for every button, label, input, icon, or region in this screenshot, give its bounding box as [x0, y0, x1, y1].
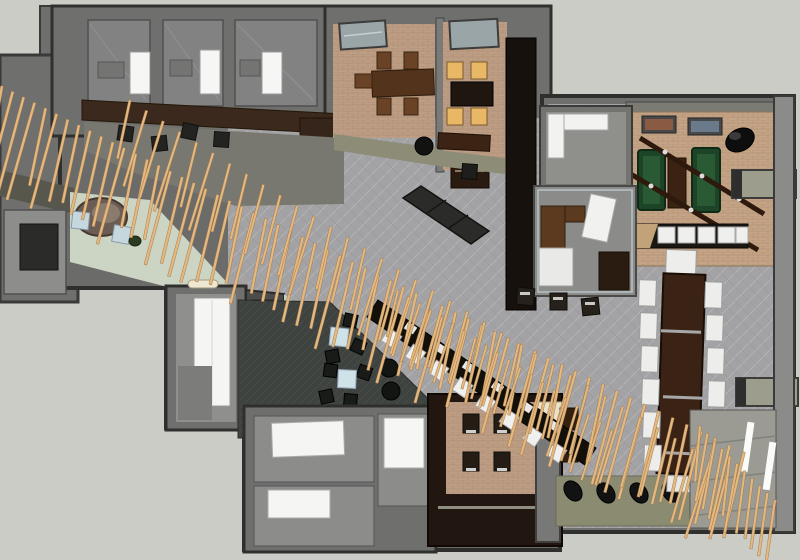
- floor-plan-rendering: [0, 0, 800, 560]
- conference-chair: [705, 282, 723, 309]
- conference-chair: [640, 313, 658, 340]
- small-dark-table: [461, 163, 477, 179]
- dining1-table: [372, 69, 435, 97]
- lounge-chair: [325, 349, 340, 364]
- lounge-pouf: [382, 382, 400, 400]
- workshop-room1-table: [271, 421, 344, 457]
- conference-chair: [707, 348, 725, 375]
- conference-chair: [639, 280, 657, 307]
- right-exterior-wall: [774, 96, 794, 532]
- room3-desk: [240, 60, 260, 76]
- beam-fitting: [649, 184, 654, 189]
- conference-chair: [706, 315, 724, 342]
- office-b-white-couch: [539, 248, 573, 286]
- floor-plan-stage: [0, 0, 800, 560]
- dining1-chair: [377, 98, 391, 115]
- bar-stool-white: [698, 227, 715, 243]
- dining1-skylight: [339, 20, 387, 49]
- lounge-chair: [319, 389, 334, 404]
- room3-whiteboard: [262, 52, 282, 94]
- bar-stool-white: [658, 227, 675, 243]
- room2-whiteboard: [200, 50, 220, 94]
- round-table: [415, 137, 433, 155]
- workshop-room2-table: [384, 418, 424, 468]
- office-stool: [581, 297, 600, 316]
- room1-desk: [98, 62, 124, 78]
- dark-feature-wall: [506, 38, 536, 310]
- dining1-chair: [377, 52, 391, 69]
- lounge-chair: [323, 363, 338, 378]
- dining2-lit-chair: [447, 62, 463, 79]
- conference-chair: [642, 379, 660, 406]
- room1-whiteboard: [130, 52, 150, 94]
- bar-stool-white: [736, 227, 748, 243]
- left-room-door: [20, 224, 58, 270]
- dining2-lit-chair: [471, 62, 487, 79]
- dining2-lit-chair: [471, 108, 487, 125]
- dining2-skylight: [449, 19, 498, 49]
- office-b-desk-leg: [541, 206, 565, 250]
- conference-chair: [708, 381, 726, 408]
- workshop-room3-table: [268, 490, 330, 518]
- conference-chair: [641, 346, 659, 373]
- office-b-dark-couch: [599, 252, 629, 290]
- carpet-table: [213, 131, 229, 147]
- stool-highlight: [553, 297, 563, 300]
- office-stool: [516, 287, 535, 306]
- facade-ledge-cap: [736, 378, 746, 406]
- conference-head-chair: [666, 249, 697, 274]
- beam-fitting: [689, 208, 694, 213]
- stool-highlight: [585, 302, 595, 305]
- bar-stool-white: [678, 227, 695, 243]
- corridor-step: [178, 366, 212, 420]
- dining2-lit-chair: [447, 108, 463, 125]
- dining1-chair: [355, 74, 372, 88]
- chair-highlight: [466, 468, 476, 471]
- bar-stool-white: [718, 227, 735, 243]
- entry-seat-blue: [71, 211, 90, 230]
- beam-fitting: [663, 150, 668, 155]
- door-threshold-pill: [188, 280, 218, 288]
- wood-counter: [438, 133, 491, 152]
- chair-highlight: [497, 468, 507, 471]
- lounge-table-blue: [338, 370, 357, 389]
- carpet-table: [181, 123, 199, 141]
- wall-art-canvas: [645, 119, 673, 130]
- dining1-chair: [404, 98, 418, 115]
- wall-art-canvas: [691, 121, 719, 132]
- facade-ledge-cap: [732, 170, 742, 198]
- beam-fitting: [700, 174, 705, 179]
- room2-desk: [170, 60, 192, 76]
- barrel-table-top: [729, 132, 741, 140]
- office-a-counter-leg: [548, 114, 564, 158]
- stool-highlight: [520, 292, 530, 295]
- stage-edge-line: [438, 506, 538, 509]
- chair-highlight: [497, 430, 507, 433]
- chair-highlight: [466, 430, 476, 433]
- office-stool: [550, 293, 567, 310]
- dining1-chair: [404, 52, 418, 69]
- dining2-table: [451, 82, 493, 106]
